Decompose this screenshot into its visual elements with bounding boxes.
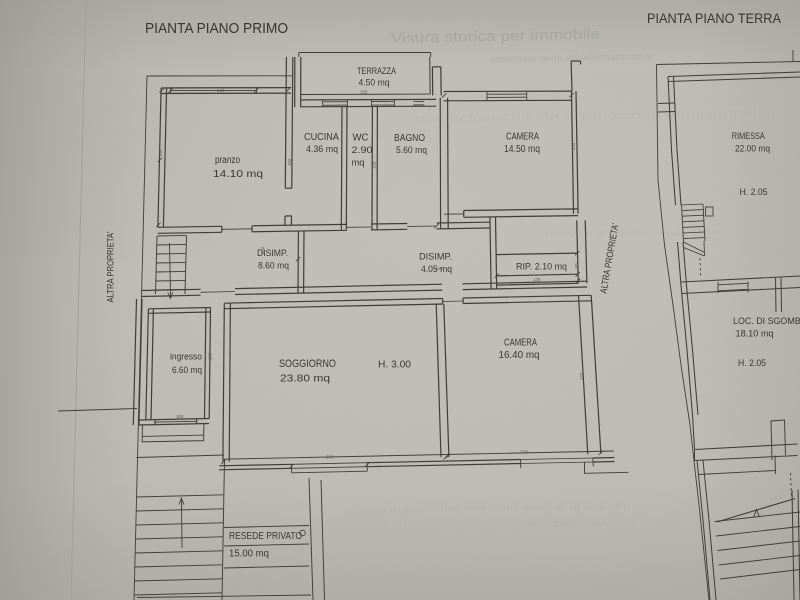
svg-text:H. 2.05: H. 2.05	[740, 187, 768, 198]
svg-text:H. 3.00: H. 3.00	[378, 359, 411, 371]
svg-text:ingresso: ingresso	[170, 352, 202, 363]
svg-text:DISIMP.: DISIMP.	[419, 252, 452, 263]
svg-text:pranzo: pranzo	[215, 155, 240, 166]
svg-text:BAGNO: BAGNO	[394, 133, 425, 144]
svg-text:RIMESSA: RIMESSA	[732, 131, 766, 142]
svg-text:140: 140	[260, 246, 265, 254]
svg-text:14.50 mq: 14.50 mq	[504, 144, 540, 155]
svg-text:4.50 mq: 4.50 mq	[359, 78, 390, 88]
svg-text:14.10 mq: 14.10 mq	[213, 169, 263, 180]
svg-text:6.60 mq: 6.60 mq	[172, 365, 202, 376]
svg-text:8.60 mq: 8.60 mq	[258, 261, 289, 272]
svg-text:310: 310	[571, 142, 576, 150]
svg-text:H. 2.05: H. 2.05	[738, 358, 766, 369]
svg-text:PIANTA PIANO TERRA: PIANTA PIANO TERRA	[647, 10, 782, 26]
svg-text:mq: mq	[352, 158, 365, 169]
svg-text:SOGGIORNO: SOGGIORNO	[279, 358, 336, 370]
svg-text:CAMERA: CAMERA	[504, 338, 537, 349]
svg-text:550: 550	[326, 455, 334, 460]
svg-text:23.80 mq: 23.80 mq	[280, 373, 330, 385]
svg-text:22.00 mq: 22.00 mq	[735, 144, 770, 155]
svg-text:ALTRA PROPRIETA': ALTRA PROPRIETA'	[106, 231, 117, 302]
svg-text:LOC. DI SGOMBER: LOC. DI SGOMBER	[733, 316, 800, 327]
svg-text:85: 85	[574, 262, 579, 268]
svg-text:CAMERA: CAMERA	[506, 132, 539, 143]
svg-text:CUCINA: CUCINA	[304, 132, 339, 143]
svg-text:120: 120	[579, 372, 584, 380]
svg-text:110: 110	[208, 352, 213, 360]
svg-text:140: 140	[217, 88, 225, 93]
svg-text:145: 145	[435, 266, 443, 271]
svg-text:RIP. 2.10 mq: RIP. 2.10 mq	[516, 262, 567, 272]
svg-text:4.36 mq: 4.36 mq	[306, 144, 338, 155]
svg-text:15.00 mq: 15.00 mq	[229, 549, 269, 560]
svg-text:320: 320	[520, 450, 528, 455]
svg-text:150: 150	[360, 90, 368, 95]
svg-text:PIANTA PIANO PRIMO: PIANTA PIANO PRIMO	[145, 20, 288, 37]
svg-text:150: 150	[287, 158, 292, 166]
svg-text:150: 150	[158, 149, 163, 157]
svg-text:16.40 mq: 16.40 mq	[499, 350, 540, 361]
svg-text:100: 100	[176, 414, 184, 419]
svg-text:5.60 mq: 5.60 mq	[396, 145, 427, 156]
svg-text:RESEDE PRIVATO: RESEDE PRIVATO	[229, 531, 302, 542]
svg-text:TERRAZZA: TERRAZZA	[357, 66, 397, 77]
svg-text:WC: WC	[353, 133, 369, 144]
svg-text:18.10 mq: 18.10 mq	[736, 329, 774, 340]
svg-text:2.90: 2.90	[352, 145, 373, 156]
svg-text:140: 140	[533, 277, 541, 282]
svg-text:159: 159	[372, 161, 377, 169]
